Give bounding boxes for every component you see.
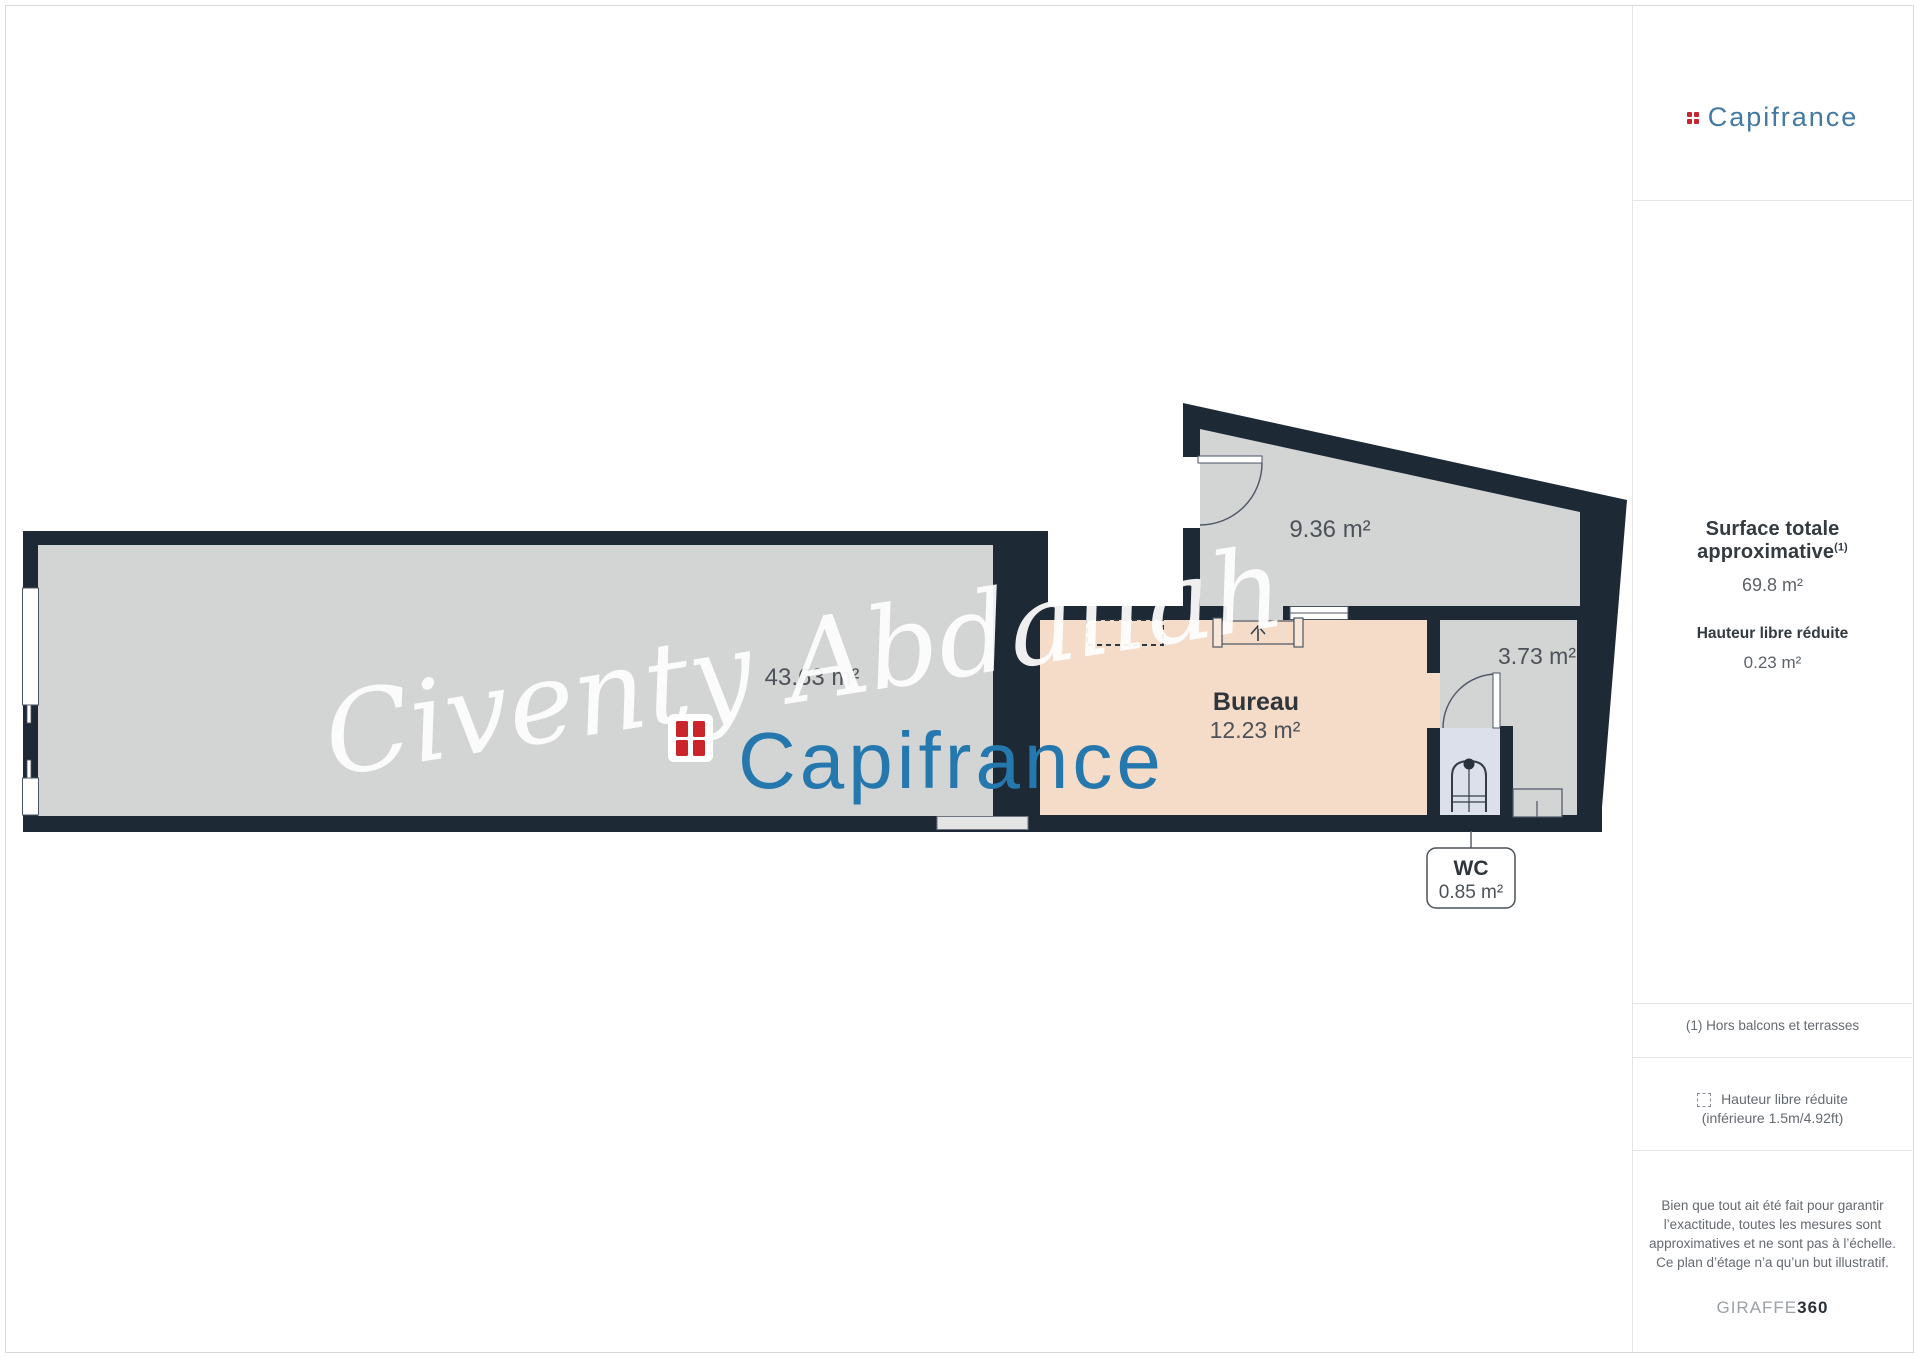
sidebar: Capifrance Surface totale approximative(…: [1633, 6, 1912, 1352]
capifrance-grid-icon: [676, 740, 688, 756]
capifrance-grid-icon: [676, 721, 688, 737]
wc-area-label: 0.85 m²: [1439, 882, 1503, 903]
reduced-height-title: Hauteur libre réduite: [1633, 625, 1912, 643]
room-936-area-label: 9.36 m²: [1289, 516, 1370, 543]
giraffe360-logo-giraffe: GIRAFFE: [1716, 1298, 1797, 1317]
surface-total-value: 69.8 m²: [1633, 575, 1912, 596]
section-divider: [1633, 1003, 1912, 1004]
stairs-post: [1294, 618, 1303, 647]
surface-total-footnote-mark: (1): [1834, 541, 1848, 553]
window: [23, 778, 39, 815]
bureau-passage-opening: [1427, 673, 1440, 728]
window: [23, 588, 39, 705]
wc-right-wall: [1500, 726, 1513, 815]
bureau-name-label: Bureau: [1213, 688, 1299, 716]
window-stub: [27, 705, 31, 723]
window-stub: [27, 760, 31, 778]
surface-info-block: Surface totale approximative(1) 69.8 m² …: [1633, 518, 1912, 673]
disclaimer-text: Bien que tout ait été fait pour garantir…: [1643, 1196, 1902, 1272]
door-leaf: [1493, 673, 1500, 728]
giraffe360-logo: GIRAFFE360: [1633, 1298, 1912, 1318]
footnote-balconies: (1) Hors balcons et terrasses: [1633, 1018, 1912, 1033]
capifrance-grid-icon-bg: [668, 714, 713, 762]
section-divider: [1633, 1150, 1912, 1151]
toilet-icon-dot: [1464, 759, 1475, 770]
door-opening: [1183, 457, 1200, 528]
giraffe360-logo-360: 360: [1797, 1298, 1828, 1317]
legend-line1: Hauteur libre réduite: [1721, 1090, 1848, 1109]
section-divider: [1633, 1057, 1912, 1058]
surface-total-title: Surface totale approximative(1): [1633, 518, 1912, 564]
capifrance-grid-icon: [693, 740, 705, 756]
door-leaf: [1198, 456, 1262, 463]
capifrance-watermark-text: Capifrance: [738, 716, 1165, 805]
floorplan-page: 43.63 m² 9.36 m² 3.73 m² Civenty Abdalla…: [0, 0, 1920, 1358]
reduced-height-legend: Hauteur libre réduite (inférieure 1.5m/4…: [1633, 1090, 1912, 1128]
room-373-area-label: 3.73 m²: [1498, 643, 1576, 669]
capifrance-logo: Capifrance: [1633, 102, 1912, 133]
capifrance-grid-icon: [1687, 112, 1699, 124]
dashed-zone-icon: [1697, 1093, 1711, 1107]
reduced-height-value: 0.23 m²: [1633, 653, 1912, 673]
wc-name-label: WC: [1454, 857, 1489, 880]
bureau-area-label: 12.23 m²: [1210, 717, 1301, 743]
wall-opening: [937, 817, 1028, 830]
capifrance-watermark: Capifrance: [668, 714, 1165, 805]
capifrance-logo-text: Capifrance: [1708, 102, 1859, 133]
capifrance-grid-icon: [693, 721, 705, 737]
surface-total-title-text: Surface totale approximative: [1697, 518, 1839, 563]
legend-line2: (inférieure 1.5m/4.92ft): [1633, 1109, 1912, 1128]
section-divider: [1633, 200, 1912, 201]
